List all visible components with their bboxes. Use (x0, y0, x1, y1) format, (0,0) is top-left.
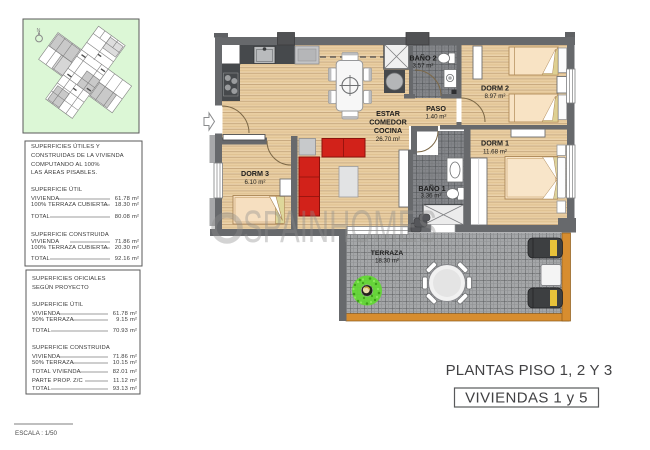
svg-text:DORM 1: DORM 1 (481, 139, 509, 148)
svg-text:TOTAL: TOTAL (31, 256, 51, 262)
svg-text:m²: m² (130, 386, 137, 392)
svg-text:100% TERRAZA CUBIERTA: 100% TERRAZA CUBIERTA (31, 202, 108, 208)
svg-text:m²: m² (132, 256, 139, 262)
svg-text:PASO: PASO (426, 104, 446, 113)
svg-text:m²: m² (130, 360, 137, 366)
svg-text:9.15: 9.15 (116, 317, 128, 323)
svg-text:BAÑO 2: BAÑO 2 (409, 54, 436, 63)
svg-text:m²: m² (130, 378, 137, 384)
svg-text:COMPUTANDO AL 100%: COMPUTANDO AL 100% (31, 162, 100, 168)
svg-text:TOTAL: TOTAL (32, 328, 52, 334)
svg-text:m²: m² (132, 245, 139, 251)
svg-text:VIVIENDAS 1 y 5: VIVIENDAS 1 y 5 (465, 390, 588, 407)
svg-text:8.97 m²: 8.97 m² (485, 93, 506, 100)
svg-text:10.15: 10.15 (113, 360, 128, 366)
svg-text:50% TERRAZA: 50% TERRAZA (32, 317, 74, 323)
svg-text:SPAINHOMES: SPAINHOMES (243, 201, 437, 252)
svg-text:TOTAL: TOTAL (32, 386, 52, 392)
svg-text:m²: m² (130, 369, 137, 375)
svg-text:1.40 m²: 1.40 m² (426, 114, 447, 121)
svg-text:PARTE PROP. Z/C: PARTE PROP. Z/C (32, 378, 83, 384)
svg-text:m²: m² (130, 328, 137, 334)
svg-text:CONSTRUIDAS DE LA VIVIENDA: CONSTRUIDAS DE LA VIVIENDA (31, 153, 124, 159)
svg-text:100% TERRAZA CUBIERTA: 100% TERRAZA CUBIERTA (31, 245, 108, 251)
svg-text:3.57 m²: 3.57 m² (413, 63, 434, 70)
svg-text:20.30: 20.30 (115, 245, 130, 251)
svg-text:26.70 m²: 26.70 m² (376, 136, 400, 143)
svg-text:18.30: 18.30 (115, 202, 130, 208)
svg-text:COCINA: COCINA (374, 126, 402, 135)
svg-text:80.08: 80.08 (115, 214, 130, 220)
svg-text:ESCALA : 1/50: ESCALA : 1/50 (15, 430, 58, 437)
svg-text:3.36 m²: 3.36 m² (421, 193, 442, 200)
svg-text:11.12: 11.12 (113, 378, 128, 384)
svg-text:70.93: 70.93 (113, 328, 128, 334)
svg-text:SUPERFICIES OFICIALES: SUPERFICIES OFICIALES (32, 276, 106, 282)
svg-text:18.30 m²: 18.30 m² (375, 259, 399, 265)
svg-text:93.13: 93.13 (113, 386, 128, 392)
svg-text:82.01: 82.01 (113, 369, 128, 375)
svg-text:50% TERRAZA: 50% TERRAZA (32, 360, 74, 366)
svg-text:92.16: 92.16 (115, 256, 130, 262)
svg-text:6.10 m²: 6.10 m² (245, 179, 266, 186)
svg-text:PLANTAS PISO 1, 2 Y 3: PLANTAS PISO 1, 2 Y 3 (446, 362, 613, 379)
svg-text:m²: m² (130, 317, 137, 323)
svg-text:LAS ÁREAS PISABLES.: LAS ÁREAS PISABLES. (31, 169, 98, 176)
svg-text:TOTAL VIVIENDA: TOTAL VIVIENDA (32, 369, 81, 375)
svg-text:DORM 2: DORM 2 (481, 84, 509, 93)
svg-text:11.68 m²: 11.68 m² (483, 149, 507, 156)
svg-text:SUPERFICIES ÚTILES Y: SUPERFICIES ÚTILES Y (31, 143, 100, 150)
svg-text:SUPERFICIE ÚTIL: SUPERFICIE ÚTIL (31, 186, 83, 193)
svg-text:TOTAL: TOTAL (31, 214, 51, 220)
svg-text:DORM 3: DORM 3 (241, 169, 269, 178)
svg-text:SUPERFICIE CONSTRUIDA: SUPERFICIE CONSTRUIDA (31, 232, 109, 238)
svg-text:SUPERFICIE CONSTRUIDA: SUPERFICIE CONSTRUIDA (32, 345, 110, 351)
svg-text:SEGÚN PROYECTO: SEGÚN PROYECTO (32, 284, 89, 291)
svg-text:SUPERFICIE ÚTIL: SUPERFICIE ÚTIL (32, 301, 84, 308)
svg-text:m²: m² (132, 214, 139, 220)
svg-text:m²: m² (132, 202, 139, 208)
